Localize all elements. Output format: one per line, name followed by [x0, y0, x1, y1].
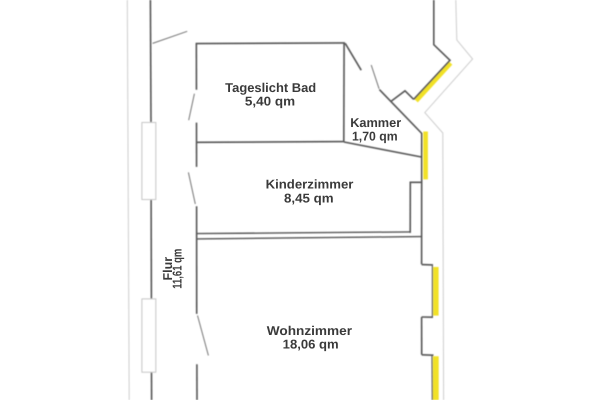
svg-text:Tageslicht Bad: Tageslicht Bad — [225, 80, 316, 95]
svg-text:5,40 qm: 5,40 qm — [245, 94, 295, 109]
svg-text:1,70 qm: 1,70 qm — [352, 129, 398, 144]
svg-text:18,06 qm: 18,06 qm — [283, 336, 339, 351]
svg-text:11,61 qm: 11,61 qm — [170, 249, 185, 289]
svg-text:Kinderzimmer: Kinderzimmer — [266, 177, 354, 192]
svg-text:8,45 qm: 8,45 qm — [284, 191, 334, 206]
